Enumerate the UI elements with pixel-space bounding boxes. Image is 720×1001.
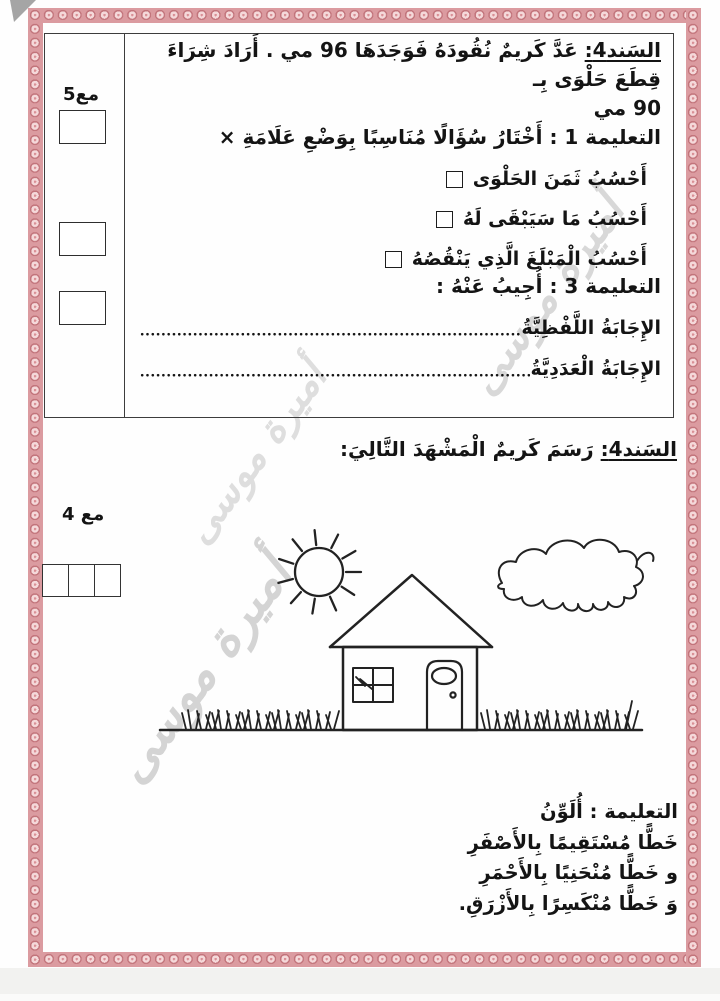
score-label: مع 4 — [62, 504, 104, 525]
exercise1-statement: السَند4: عَدَّ كَريمٌ نُقُودَهُ فَوَجَدَ… — [140, 36, 661, 94]
score-box — [59, 222, 106, 256]
option-row: أَحْسُبُ الْمَبْلَغَ الَّذِي يَنْقُصُهُ — [140, 247, 661, 272]
exercise1-content: السَند4: عَدَّ كَريمٌ نُقُودَهُ فَوَجَدَ… — [126, 34, 673, 417]
answer-row: الإِجَابَةُ الْعَدَدِيَّةُ — [140, 355, 661, 383]
coloring-title: التعليمة : أُلَوِّنُ — [459, 797, 678, 828]
option-row: أَحْسُبُ مَا سَيَبْقَى لَهُ — [140, 207, 661, 232]
exercise2-title: السَند4: — [601, 437, 677, 461]
score-column: مع5 — [45, 34, 125, 417]
border-edge-left — [28, 8, 43, 967]
grass-drawing — [182, 701, 638, 729]
score-box — [94, 565, 120, 596]
option-label: أَحْسُبُ ثَمَنَ الحَلْوَى — [473, 168, 647, 190]
photo-edge-strip — [0, 968, 720, 1001]
option-label: أَحْسُبُ الْمَبْلَغَ الَّذِي يَنْقُصُهُ — [412, 248, 647, 270]
answer-label: الإِجَابَةُ اللَّفْظِيَّةُ — [521, 314, 661, 342]
house-drawing — [330, 575, 492, 730]
instruction3-text: التعليمة 3 : أُجِيبُ عَنْهُ : — [140, 272, 661, 301]
coloring-line: وَ خَطًّا مُنْكَسِرًا بِالأَزْرَقِ. — [459, 889, 678, 920]
coloring-line: و خَطًّا مُنْحَنِيًا بِالأَحْمَرِ — [459, 858, 678, 889]
coloring-line: خَطًّا مُسْتَقِيمًا بِالأَصْفَرِ — [459, 828, 678, 859]
worksheet-page: أميرة موسى أميرة موسى أميرة موسى مع5 الس… — [0, 0, 720, 1001]
score-boxes-row — [42, 564, 121, 597]
instruction1-text: التعليمة 1 : أَخْتَارُ سُؤَالًا مُنَاسِب… — [140, 123, 661, 152]
answer-row: الإِجَابَةُ اللَّفْظِيَّةُ — [140, 314, 661, 342]
answer-label: الإِجَابَةُ الْعَدَدِيَّةُ — [530, 355, 661, 383]
border-edge-bottom — [28, 952, 701, 967]
exercise1-intro-2: 90 مي — [140, 94, 661, 123]
exercise1-title: السَند4: — [585, 38, 661, 62]
cloud-drawing — [498, 540, 653, 611]
window-drawing — [353, 668, 393, 702]
checkbox-icon — [446, 171, 463, 188]
exercise2-intro: رَسَمَ كَريمٌ الْمَشْهَدَ التَّالِيَ: — [340, 437, 594, 461]
dotted-answer-line — [140, 373, 530, 378]
score-box — [59, 291, 106, 325]
coloring-instruction: التعليمة : أُلَوِّنُ خَطًّا مُسْتَقِيمًا… — [459, 797, 678, 919]
exercise2-statement: السَند4: رَسَمَ كَريمٌ الْمَشْهَدَ التَّ… — [340, 437, 677, 461]
score-box — [59, 110, 106, 144]
checkbox-icon — [385, 251, 402, 268]
dotted-answer-line — [140, 332, 521, 337]
score-box — [43, 565, 68, 596]
score-label: مع5 — [63, 84, 99, 105]
door-drawing — [427, 661, 462, 730]
option-row: أَحْسُبُ ثَمَنَ الحَلْوَى — [140, 167, 661, 192]
checkbox-icon — [436, 211, 453, 228]
border-edge-right — [686, 8, 701, 967]
exercise1-table: مع5 السَند4: عَدَّ كَريمٌ نُقُودَهُ فَوَ… — [44, 33, 674, 418]
scene-drawing — [150, 520, 660, 748]
sun-drawing — [278, 530, 361, 613]
option-label: أَحْسُبُ مَا سَيَبْقَى لَهُ — [463, 208, 647, 230]
border-edge-top — [28, 8, 701, 23]
score-box — [68, 565, 94, 596]
